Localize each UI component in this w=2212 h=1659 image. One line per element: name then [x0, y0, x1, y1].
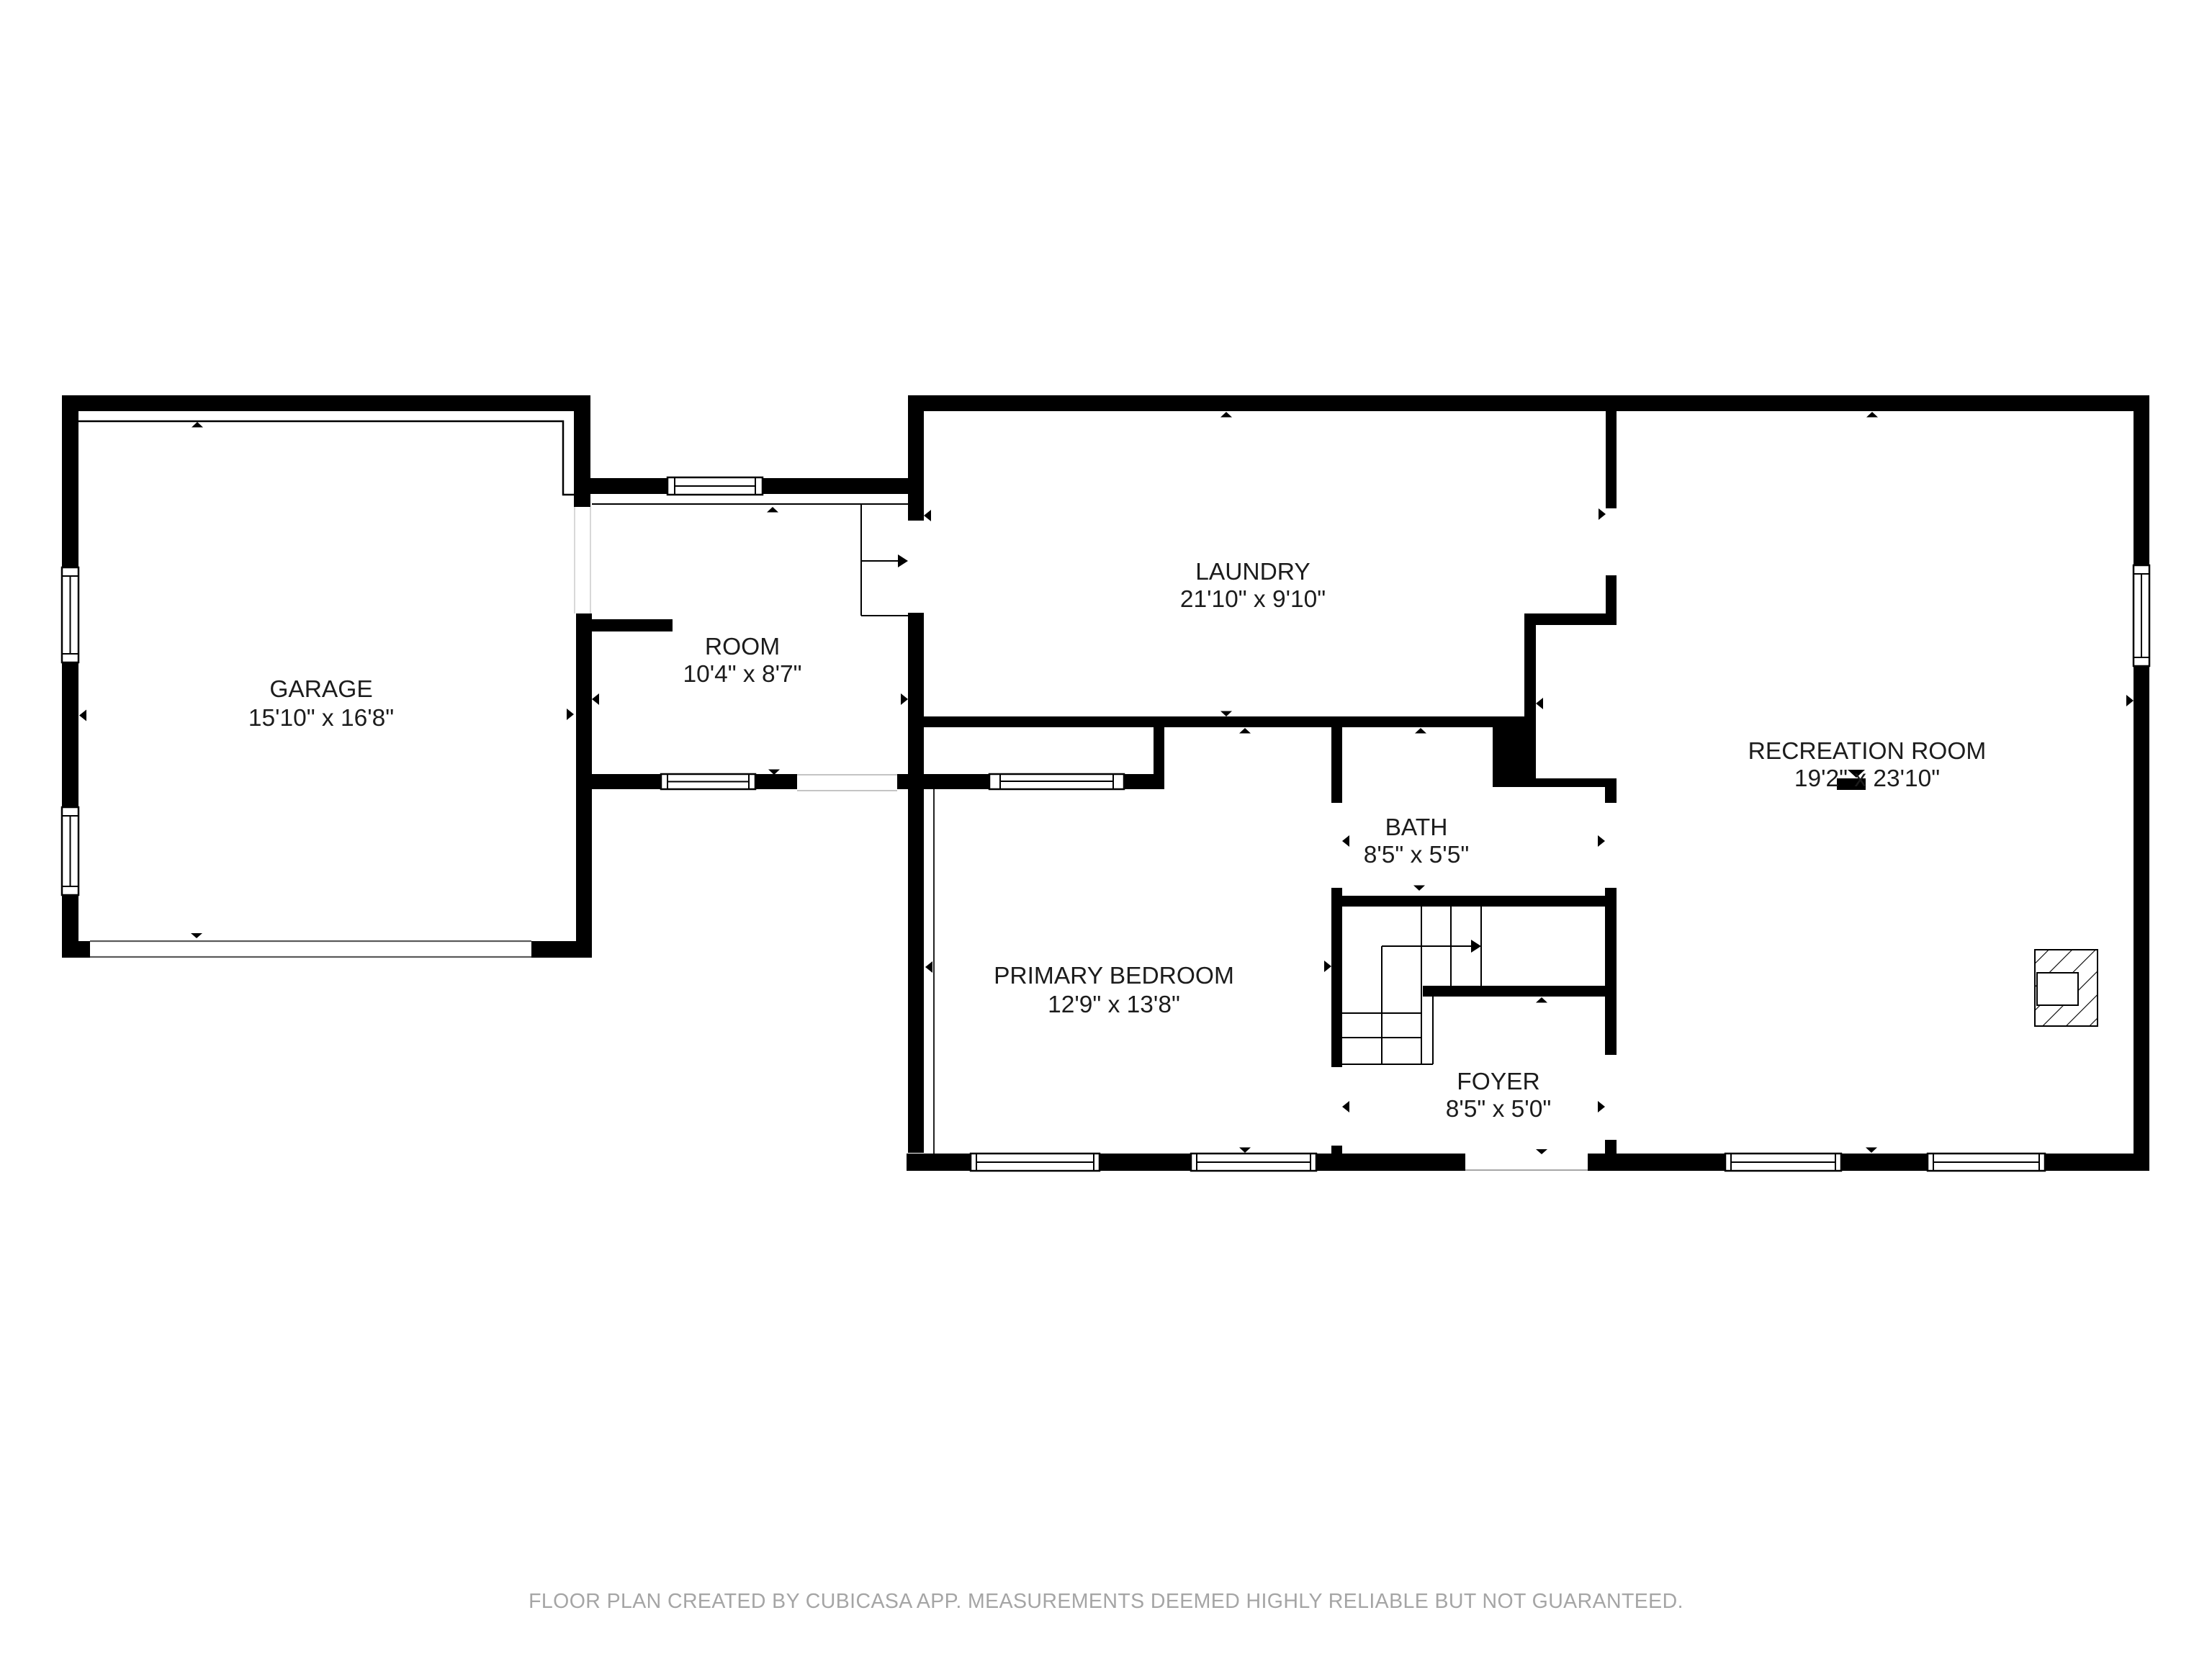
- svg-text:15'10" x 16'8": 15'10" x 16'8": [248, 705, 394, 732]
- svg-text:10'4" x 8'7": 10'4" x 8'7": [683, 661, 801, 688]
- svg-text:8'5" x 5'5": 8'5" x 5'5": [1364, 842, 1469, 868]
- svg-text:FOYER: FOYER: [1457, 1069, 1539, 1095]
- svg-text:PRIMARY BEDROOM: PRIMARY BEDROOM: [994, 963, 1234, 989]
- svg-text:19'2" x 23'10": 19'2" x 23'10": [1794, 765, 1940, 792]
- svg-text:12'9" x 13'8": 12'9" x 13'8": [1048, 992, 1180, 1018]
- svg-text:BATH: BATH: [1385, 814, 1448, 841]
- svg-text:LAUNDRY: LAUNDRY: [1195, 559, 1310, 585]
- svg-text:GARAGE: GARAGE: [269, 676, 372, 703]
- svg-text:21'10" x 9'10": 21'10" x 9'10": [1180, 586, 1326, 613]
- svg-text:RECREATION ROOM: RECREATION ROOM: [1748, 738, 1987, 765]
- svg-text:FLOOR PLAN CREATED BY CUBICASA: FLOOR PLAN CREATED BY CUBICASA APP. MEAS…: [529, 1590, 1683, 1613]
- svg-text:8'5" x 5'0": 8'5" x 5'0": [1446, 1096, 1551, 1123]
- svg-text:ROOM: ROOM: [705, 634, 780, 660]
